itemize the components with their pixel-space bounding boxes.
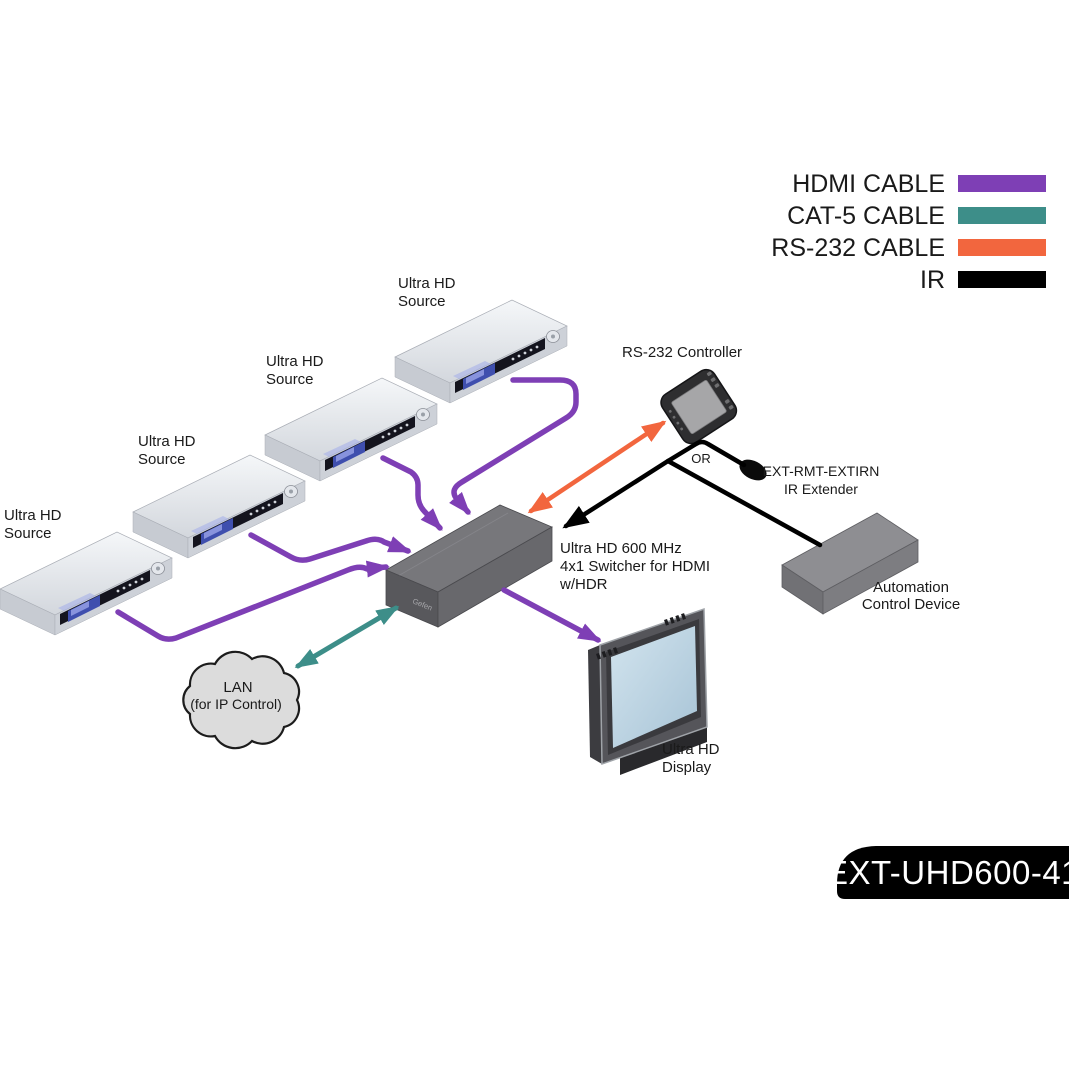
controller-label: RS-232 Controller [622, 344, 742, 361]
legend-label-cat5: CAT-5 CABLE [787, 202, 945, 230]
automation-label: Automation Control Device [862, 579, 960, 613]
ir-line-main [566, 461, 668, 526]
source2-line1: Ultra HD [266, 353, 324, 370]
switcher-line2: 4x1 Switcher for HDMI [560, 558, 710, 575]
legend-swatch-rs232 [958, 239, 1046, 256]
switcher-line3: w/HDR [559, 576, 608, 593]
model-badge: EXT-UHD600-41 [826, 846, 1069, 899]
ir-extender-label: EXT-RMT-EXTIRN IR Extender [763, 463, 880, 497]
legend-label-rs232: RS-232 CABLE [771, 234, 945, 262]
av-system-diagram: HDMI CABLE CAT-5 CABLE RS-232 CABLE IR G… [0, 0, 1069, 1069]
display-line1: Ultra HD [662, 741, 720, 758]
rs232-cable [531, 423, 663, 511]
switcher-device: Gefen [386, 505, 552, 627]
ir-extender-line2: IR Extender [784, 481, 858, 497]
model-badge-text: EXT-UHD600-41 [826, 854, 1069, 891]
automation-line2: Control Device [862, 596, 960, 613]
legend-swatch-hdmi [958, 175, 1046, 192]
source4-line2: Source [4, 525, 52, 542]
automation-line1: Automation [873, 579, 949, 596]
or-label: OR [691, 451, 711, 466]
source-device-4 [0, 532, 172, 635]
source1-line2: Source [398, 293, 446, 310]
cat5-cable-lan [298, 608, 396, 666]
source4-line1: Ultra HD [4, 507, 62, 524]
hdmi-cable-source2 [383, 458, 440, 528]
source-device-1 [395, 300, 567, 403]
hdmi-cable-display [504, 590, 598, 640]
lan-line1: LAN [223, 679, 252, 696]
legend-swatch-cat5 [958, 207, 1046, 224]
legend-swatch-ir [958, 271, 1046, 288]
legend: HDMI CABLE CAT-5 CABLE RS-232 CABLE IR [771, 170, 1046, 294]
source-label-4: Ultra HD Source [4, 507, 62, 542]
switcher-line1: Ultra HD 600 MHz [560, 540, 682, 557]
rs232-controller-device [657, 366, 740, 448]
diagram-page: HDMI CABLE CAT-5 CABLE RS-232 CABLE IR G… [0, 0, 1069, 1069]
display-label: Ultra HD Display [662, 741, 720, 776]
source2-line2: Source [266, 371, 314, 388]
source-device-2 [265, 378, 437, 481]
source3-line1: Ultra HD [138, 433, 196, 450]
source1-line1: Ultra HD [398, 275, 456, 292]
source3-line2: Source [138, 451, 186, 468]
switcher-label: Ultra HD 600 MHz 4x1 Switcher for HDMI w… [559, 540, 710, 593]
source-device-3 [133, 455, 305, 558]
source-label-2: Ultra HD Source [266, 353, 324, 388]
source-label-3: Ultra HD Source [138, 433, 196, 468]
hdmi-cable-source3 [251, 535, 408, 560]
source-label-1: Ultra HD Source [398, 275, 456, 310]
legend-label-hdmi: HDMI CABLE [792, 170, 945, 198]
legend-label-ir: IR [920, 266, 945, 294]
ir-extender-line1: EXT-RMT-EXTIRN [763, 463, 880, 479]
lan-line2: (for IP Control) [190, 696, 282, 712]
display-line2: Display [662, 759, 712, 776]
